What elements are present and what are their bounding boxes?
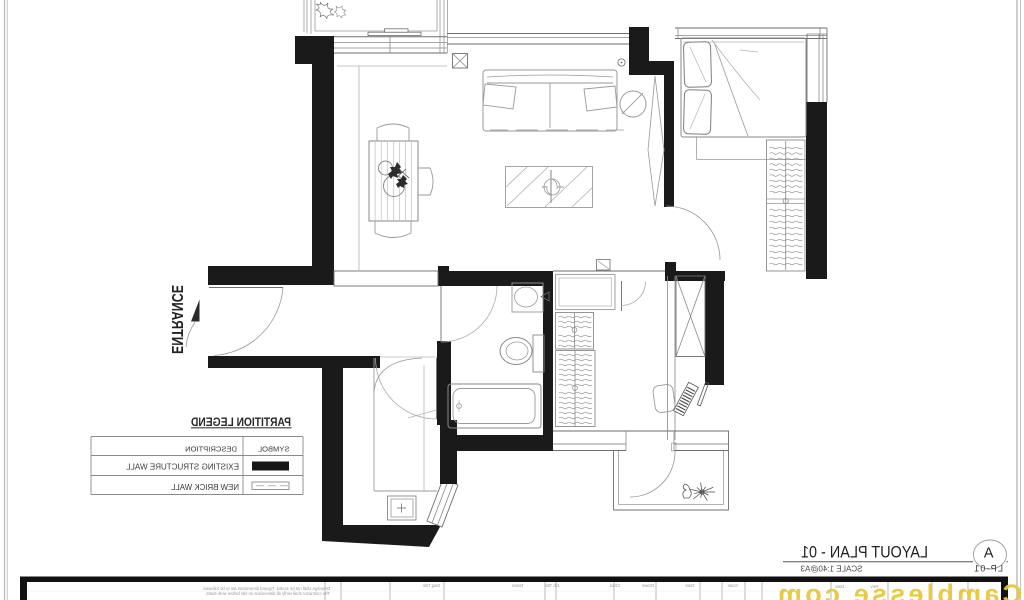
svg-text:Job Title: Job Title [544,583,560,588]
svg-text:LP-01: LP-01 [973,564,1003,574]
svg-text:Date: Date [684,583,694,588]
svg-text:EXISTING STRUCTURE WALL: EXISTING STRUCTURE WALL [126,462,239,472]
svg-text:NEW BRICK WALL: NEW BRICK WALL [171,483,239,492]
svg-text:Notes: Notes [512,583,523,588]
svg-text:SCALE 1:40@A3: SCALE 1:40@A3 [800,565,862,574]
svg-text:Chkd: Chkd [610,583,620,588]
svg-text:The contractor shall verify al: The contractor shall verify all dimensio… [205,591,330,596]
svg-text:DESCRIPTION: DESCRIPTION [185,445,237,454]
svg-text:A: A [984,546,994,562]
svg-text:LAYOUT PLAN - 01: LAYOUT PLAN - 01 [801,544,928,562]
svg-text:PARTITION LEGEND: PARTITION LEGEND [191,415,291,429]
svg-text:Scale: Scale [727,583,738,588]
svg-text:Camblesse com: Camblesse com [775,579,1022,600]
svg-text:Dwg Title: Dwg Title [422,583,440,588]
svg-text:Drawn: Drawn [641,583,654,588]
svg-text:SYMBOL: SYMBOL [258,445,290,454]
svg-text:ENTRANCE: ENTRANCE [168,285,185,354]
